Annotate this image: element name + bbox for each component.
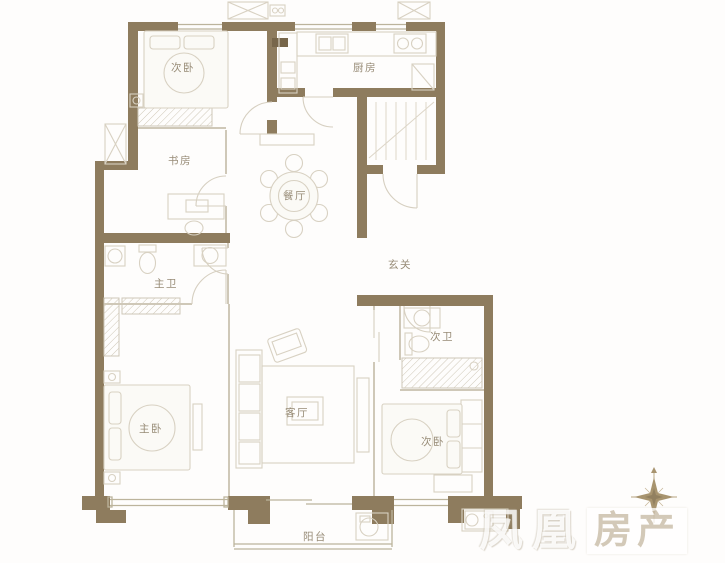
master-bath-fixtures bbox=[105, 245, 226, 274]
furniture bbox=[104, 2, 508, 540]
dining-table-icon bbox=[260, 134, 328, 238]
ac-platform-icon bbox=[228, 2, 285, 19]
wardrobe-icon bbox=[122, 298, 180, 314]
floor-plan-image: 次卧 书房 餐厅 厨房 玄关 主卫 主卧 客厅 次卫 次卧 阳台 凤凰 房产 bbox=[0, 0, 725, 563]
room-label-bedroom-top: 次卧 bbox=[171, 61, 195, 74]
door-study bbox=[196, 176, 226, 206]
room-label-bedroom-bottom: 次卧 bbox=[421, 435, 445, 448]
desk-icon bbox=[168, 194, 224, 235]
sink-icon bbox=[404, 308, 440, 328]
tv-console-icon bbox=[357, 378, 369, 452]
sofa-icon bbox=[236, 328, 369, 468]
door-master-bedroom bbox=[192, 270, 226, 304]
wardrobes bbox=[104, 108, 482, 388]
equipment-platform bbox=[462, 509, 508, 531]
stairwell bbox=[369, 102, 434, 160]
room-label-second-bath: 次卫 bbox=[430, 330, 454, 343]
compass-icon bbox=[631, 467, 677, 523]
wardrobe-icon bbox=[138, 108, 212, 126]
toilet-icon bbox=[139, 245, 156, 252]
room-label-balcony: 阳台 bbox=[303, 530, 327, 543]
floor-plan-svg: 次卧 书房 餐厅 厨房 玄关 主卫 主卧 客厅 次卫 次卧 阳台 bbox=[0, 0, 725, 563]
shower-area-icon bbox=[402, 358, 482, 388]
room-label-study: 书房 bbox=[168, 154, 192, 167]
door-bedroom-bottom-slider bbox=[374, 308, 379, 362]
room-label-dining: 餐厅 bbox=[283, 189, 307, 202]
room-label-living: 客厅 bbox=[285, 406, 309, 419]
wardrobe-icon bbox=[104, 298, 119, 356]
door-entry bbox=[383, 174, 417, 208]
ac-platform-icon bbox=[105, 124, 126, 164]
room-label-master-bedroom: 主卧 bbox=[139, 422, 163, 435]
door-kitchen bbox=[303, 97, 333, 127]
room-label-entry: 玄关 bbox=[388, 258, 412, 271]
room-label-kitchen: 厨房 bbox=[353, 61, 377, 74]
room-label-master-bath: 主卫 bbox=[154, 278, 178, 290]
ac-platform-icon bbox=[398, 2, 430, 19]
